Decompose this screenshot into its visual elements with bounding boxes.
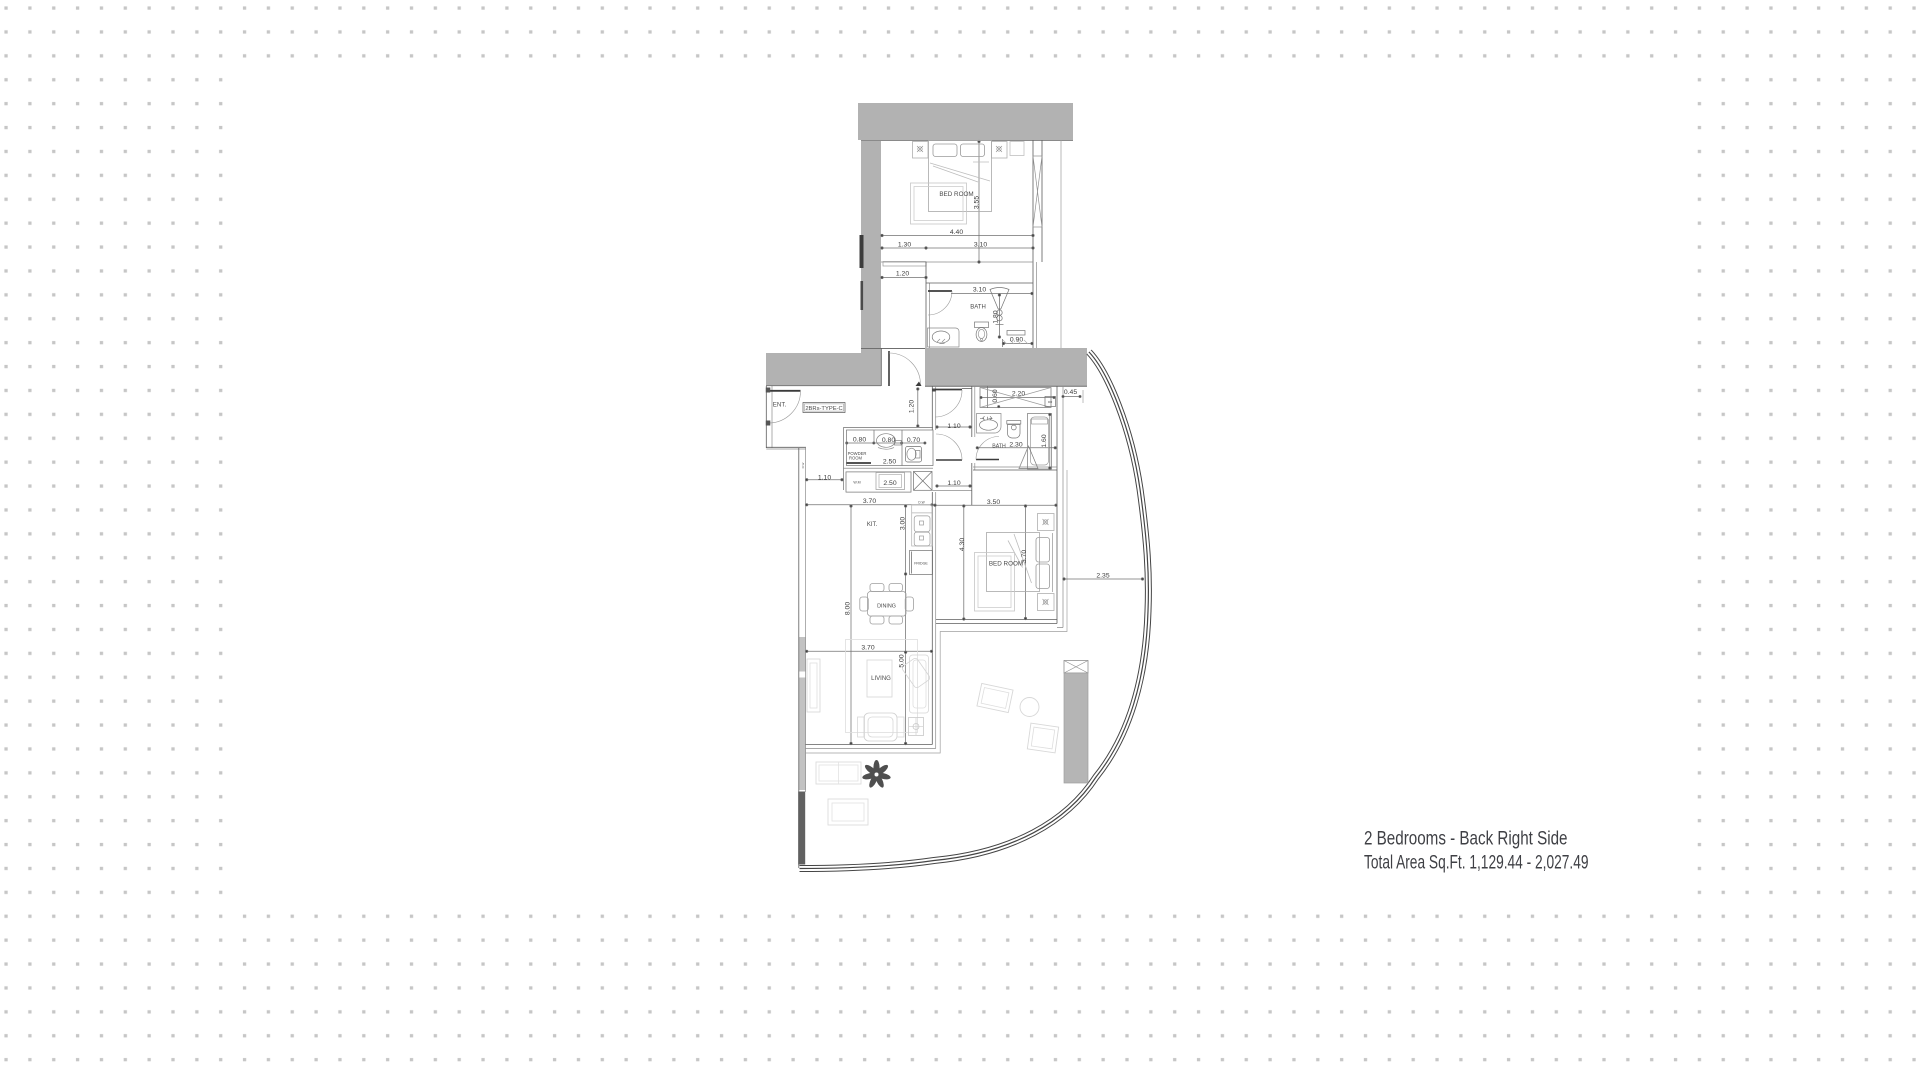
svg-text:BATH: BATH <box>992 443 1006 449</box>
svg-text:8.00: 8.00 <box>845 602 852 615</box>
svg-text:1.30: 1.30 <box>898 242 911 249</box>
svg-text:1.10: 1.10 <box>947 480 960 487</box>
svg-text:3.55: 3.55 <box>974 196 981 209</box>
svg-text:2.30: 2.30 <box>1009 442 1022 449</box>
svg-text:3.70: 3.70 <box>863 498 876 505</box>
svg-text:BED ROOM: BED ROOM <box>939 191 973 198</box>
svg-text:0.60: 0.60 <box>992 389 999 402</box>
svg-text:2.50: 2.50 <box>883 459 896 466</box>
svg-text:BATH: BATH <box>970 305 986 311</box>
svg-text:3.10: 3.10 <box>973 287 986 294</box>
svg-text:FRIDGE: FRIDGE <box>914 561 928 565</box>
svg-text:1.10: 1.10 <box>947 423 960 430</box>
svg-text:W.M: W.M <box>853 480 860 484</box>
svg-text:ENT.: ENT. <box>773 402 787 409</box>
svg-text:4.40: 4.40 <box>950 229 963 236</box>
svg-text:2.35: 2.35 <box>1096 573 1109 580</box>
svg-text:BED ROOM: BED ROOM <box>989 560 1023 567</box>
svg-text:3.50: 3.50 <box>987 499 1000 506</box>
svg-text:KIT.: KIT. <box>867 522 878 528</box>
svg-text:Total Area Sq.Ft. 1,129.44 - 2: Total Area Sq.Ft. 1,129.44 - 2,027.49 <box>1364 851 1589 873</box>
svg-text:3.70: 3.70 <box>861 645 874 652</box>
svg-text:DINING: DINING <box>877 604 896 610</box>
svg-text:1.60: 1.60 <box>1041 434 1048 447</box>
svg-text:2.20: 2.20 <box>1012 391 1025 398</box>
svg-text:D.W: D.W <box>801 462 805 468</box>
svg-text:0.80: 0.80 <box>882 437 895 444</box>
svg-text:3.10: 3.10 <box>974 242 987 249</box>
svg-text:0.45: 0.45 <box>1064 389 1077 396</box>
svg-text:0.70: 0.70 <box>907 437 920 444</box>
svg-text:ROOM: ROOM <box>849 456 863 461</box>
svg-text:5.00: 5.00 <box>898 654 905 667</box>
svg-text:1.20: 1.20 <box>908 400 915 413</box>
svg-text:2.50: 2.50 <box>883 480 896 487</box>
svg-text:0.90: 0.90 <box>1010 337 1023 344</box>
svg-text:D.W: D.W <box>918 500 924 504</box>
svg-text:3.00: 3.00 <box>899 517 906 530</box>
svg-text:1.80: 1.80 <box>993 310 1000 323</box>
svg-text:2 Bedrooms - Back Right Side: 2 Bedrooms - Back Right Side <box>1364 827 1568 849</box>
svg-text:1.10: 1.10 <box>818 475 831 482</box>
svg-text:LIVING: LIVING <box>871 676 891 682</box>
svg-text:1.20: 1.20 <box>896 271 909 278</box>
svg-text:0.80: 0.80 <box>853 437 866 444</box>
svg-text:4.30: 4.30 <box>959 538 966 551</box>
